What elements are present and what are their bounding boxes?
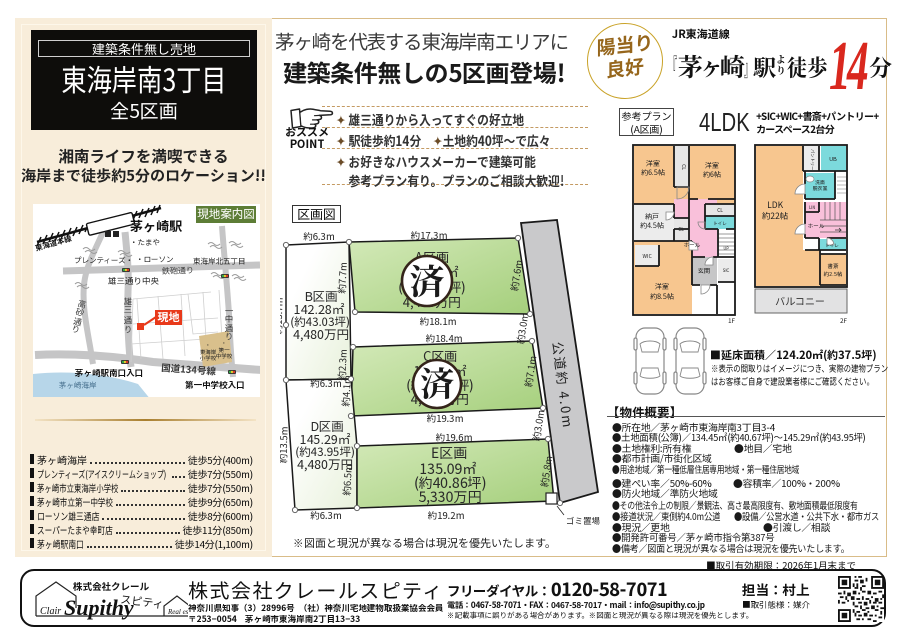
svg-text:2F: 2F [840,315,847,325]
svg-text:小学校: 小学校 [199,354,217,362]
svg-text:約19.3m: 約19.3m [427,411,464,425]
svg-text:ゴミ置場: ゴミ置場 [566,515,601,527]
svg-text:約6.5帖: 約6.5帖 [641,168,665,178]
svg-text:第一中学校入口: 第一中学校入口 [185,379,245,391]
svg-text:書斎: 書斎 [827,262,839,270]
svg-text:WIC: WIC [642,253,651,260]
svg-text:済: 済 [420,357,454,406]
svg-text:約19.2m: 約19.2m [428,508,465,522]
svg-text:東海道本線: 東海道本線 [34,233,74,254]
svg-text:UB: UB [829,155,837,163]
svg-text:5,330万円: 5,330万円 [419,487,482,507]
svg-text:・たまや: ・たまや [130,237,160,248]
svg-text:約3.0m: 約3.0m [529,409,548,442]
svg-text:トイレ: トイレ [713,221,727,227]
svg-text:約18.4m: 約18.4m [426,331,463,345]
svg-text:東海岸北五丁目: 東海岸北五丁目 [193,256,246,267]
svg-text:国道134号線: 国道134号線 [161,360,217,378]
svg-text:バルコニー: バルコニー [775,293,825,308]
svg-text:茅ヶ崎海岸: 茅ヶ崎海岸 [59,380,97,391]
svg-text:茅ヶ崎駅: 茅ヶ崎駅 [130,216,182,235]
svg-text:玄関: 玄関 [698,266,710,275]
svg-text:約4.5帖: 約4.5帖 [640,221,664,231]
svg-text:雄三通り: 雄三通り [122,296,134,334]
svg-text:4,480万円: 4,480万円 [293,324,349,343]
svg-text:雄三通り中央: 雄三通り中央 [107,275,160,287]
svg-text:Clair: Clair [40,606,61,617]
svg-text:パントリー: パントリー [809,149,815,170]
svg-text:中学校: 中学校 [216,352,233,360]
svg-text:約17.3m: 約17.3m [411,228,448,242]
svg-text:CL: CL [678,226,684,233]
svg-text:茅ヶ崎駅南口入口: 茅ヶ崎駅南口入口 [75,367,143,379]
svg-text:鉄砲通り: 鉄砲通り [161,265,194,277]
svg-text:済: 済 [409,255,444,305]
svg-text:洋室: 洋室 [655,282,669,292]
svg-text:UP: UP [723,246,729,252]
svg-text:約6帖: 約6帖 [703,170,721,180]
svg-text:1F: 1F [728,315,735,325]
svg-text:株式会社クレール: 株式会社クレール [73,579,150,593]
svg-text:約6.3m: 約6.3m [310,508,341,522]
svg-text:ホール: ホール [684,241,701,249]
svg-text:LIN: LIN [809,205,815,211]
svg-text:トイレ: トイレ [825,243,839,249]
svg-text:約6.3m: 約6.3m [303,229,334,243]
svg-text:CL: CL [680,164,687,170]
svg-text:Real estate: Real estate [167,608,188,616]
svg-text:一中通り: 一中通り [223,306,235,340]
svg-text:ホール: ホール [808,222,825,230]
svg-text:・ローソン: ・ローソン [136,254,174,265]
svg-text:約18.1m: 約18.1m [420,314,457,328]
svg-text:約19.6m: 約19.6m [436,430,473,444]
svg-text:約7.7m: 約7.7m [334,262,350,294]
svg-text:SIC: SIC [723,268,730,274]
svg-text:約22帖: 約22帖 [762,210,789,222]
svg-text:約13.5m: 約13.5m [280,426,291,463]
svg-text:約13.7m: 約13.7m [280,297,286,334]
svg-text:約6.5m: 約6.5m [339,464,355,496]
svg-text:CL: CL [717,207,723,214]
svg-text:脱衣室: 脱衣室 [812,185,828,192]
svg-text:約2.5帖: 約2.5帖 [824,270,843,278]
svg-text:Supithy: Supithy [64,595,134,620]
svg-text:プレンティーズ・: プレンティーズ・ [74,255,133,266]
svg-text:約8.5帖: 約8.5帖 [650,292,674,302]
